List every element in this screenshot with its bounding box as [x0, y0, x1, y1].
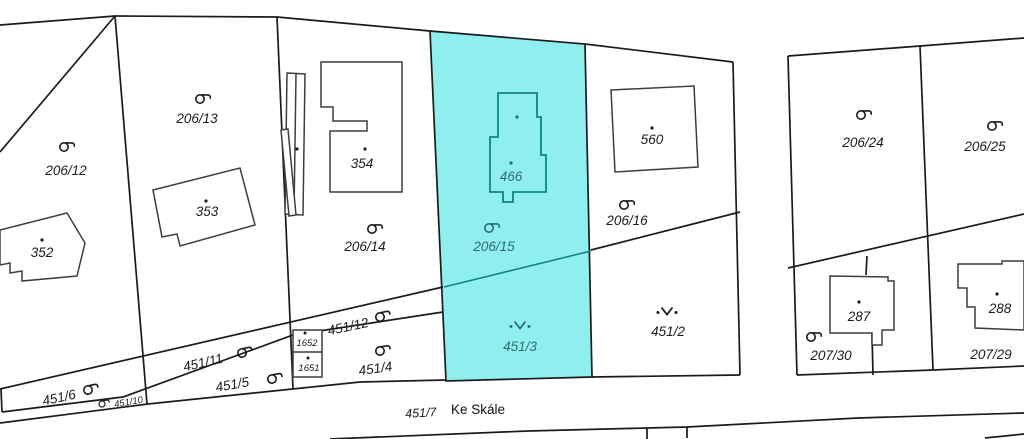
building-label-1652: 1652 — [296, 338, 318, 349]
building-label-353: 353 — [196, 204, 219, 219]
building-560 — [611, 86, 698, 172]
building-label-352: 352 — [31, 245, 54, 260]
parcel-label-451-12: 451/12 — [326, 315, 370, 338]
parcel-label-451-5: 451/5 — [214, 374, 250, 395]
building-label-560: 560 — [641, 132, 664, 147]
garden-icon — [807, 333, 822, 341]
building-label-466: 466 — [500, 169, 523, 184]
building-label-1651: 1651 — [298, 363, 319, 374]
street-name-label: Ke Skále — [451, 402, 505, 417]
building-466 — [490, 93, 546, 202]
building-354 — [321, 62, 402, 192]
building-label-354: 354 — [351, 156, 374, 171]
building-label-288: 288 — [988, 301, 1012, 316]
parcel-label-206-12: 206/12 — [44, 163, 87, 178]
parcel-label-206-16: 206/16 — [605, 213, 648, 228]
parcel-label-206-24: 206/24 — [841, 135, 883, 150]
garden-icon — [620, 201, 635, 209]
garden-icon — [196, 95, 211, 103]
cadastral-map: 206/12 206/13 206/14 206/15 206/16 206/2… — [0, 0, 1024, 439]
parcel-label-451-4: 451/4 — [358, 359, 394, 379]
highlighted-parcel-polygon[interactable] — [430, 31, 592, 381]
building-288 — [958, 261, 1024, 330]
garden-icon — [375, 345, 391, 355]
garden-icon — [83, 384, 99, 395]
parcel-label-206-14: 206/14 — [343, 239, 385, 254]
building-label-287: 287 — [847, 309, 871, 324]
garden-icon — [988, 122, 1003, 130]
parcel-label-451-6: 451/6 — [41, 387, 78, 409]
parcel-label-451-2: 451/2 — [651, 324, 685, 339]
garden-icon — [368, 225, 383, 233]
garden-icon — [60, 143, 75, 151]
parcel-label-206-15: 206/15 — [472, 239, 515, 254]
parcel-label-451-7: 451/7 — [405, 405, 438, 421]
parcel-label-451-11: 451/11 — [182, 351, 225, 375]
parcel-label-206-25: 206/25 — [963, 139, 1006, 154]
grassland-icon — [657, 308, 678, 315]
parcel-label-206-13: 206/13 — [175, 111, 218, 126]
parcel-label-207-29: 207/29 — [969, 347, 1012, 362]
parcel-label-451-3: 451/3 — [503, 339, 537, 354]
garden-icon — [98, 400, 109, 408]
parcel-label-207-30: 207/30 — [809, 348, 852, 363]
garden-icon — [267, 373, 283, 384]
garden-icon — [857, 111, 872, 119]
map-canvas[interactable]: 206/12 206/13 206/14 206/15 206/16 206/2… — [0, 0, 1024, 439]
